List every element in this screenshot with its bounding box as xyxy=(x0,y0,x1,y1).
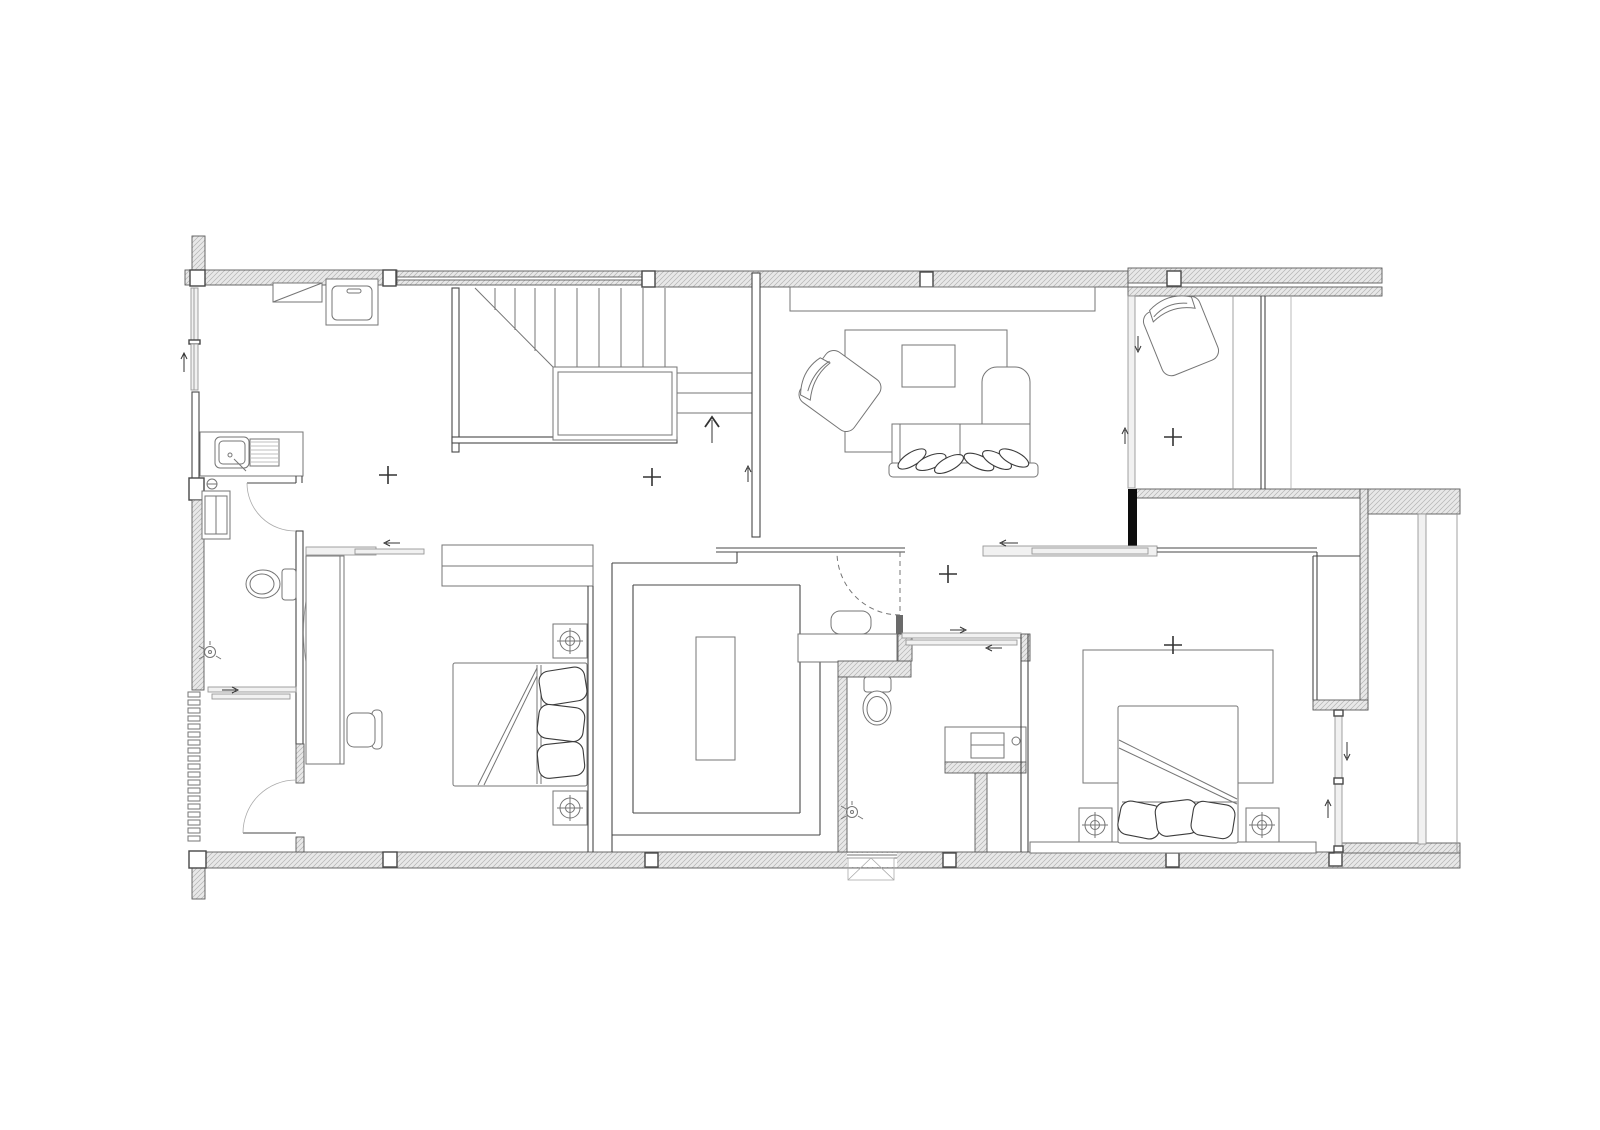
tv-console xyxy=(790,287,1095,311)
cabinet xyxy=(202,491,230,539)
stair-up-arrow xyxy=(705,417,719,443)
window xyxy=(191,344,198,390)
black-wall-bar xyxy=(1128,489,1137,546)
column xyxy=(190,270,205,286)
bedroom-1 xyxy=(306,540,593,852)
north-wall xyxy=(1157,548,1317,552)
window xyxy=(191,288,198,340)
armchair xyxy=(1138,286,1222,378)
window-opening-arrow xyxy=(181,353,187,372)
coffee-table xyxy=(902,345,955,387)
hall-partition-wall xyxy=(752,273,760,537)
stair-lower-steps xyxy=(677,373,752,413)
hall-south-wall xyxy=(716,548,905,552)
washing-machine xyxy=(326,279,378,325)
nightstand-lamp xyxy=(553,791,587,825)
column xyxy=(383,270,396,286)
stair-landing xyxy=(553,367,677,440)
bed-1 xyxy=(453,663,588,786)
door-swing-bottom xyxy=(243,780,296,833)
reach-in-wardrobe xyxy=(1313,552,1360,700)
staircase xyxy=(452,273,760,537)
vent-opening xyxy=(847,853,897,880)
vanity-counter xyxy=(798,634,897,662)
desk-chair xyxy=(347,710,382,749)
desk-counter xyxy=(306,556,344,764)
column xyxy=(642,271,655,287)
door-swing-top xyxy=(247,483,296,531)
cross-markers xyxy=(379,428,1182,654)
column xyxy=(1329,853,1342,866)
column xyxy=(920,272,933,287)
vanity-with-sink xyxy=(945,727,1026,763)
glass-wall xyxy=(1325,710,1350,853)
valve-symbol xyxy=(207,479,217,489)
sink-counter xyxy=(200,432,303,476)
armchair xyxy=(789,342,885,436)
built-in-wardrobe xyxy=(442,545,593,586)
stair-treads xyxy=(495,288,665,367)
terrace-rail xyxy=(1418,514,1457,852)
toilet xyxy=(863,677,891,725)
column xyxy=(943,853,956,867)
floor-plan-canvas xyxy=(0,0,1600,1130)
nightstand-lamp xyxy=(553,624,587,658)
shower-sliding-door xyxy=(208,687,296,699)
glass-partition xyxy=(1128,296,1135,488)
column xyxy=(189,851,206,868)
opening-arrow xyxy=(745,466,751,482)
bedroom-2 xyxy=(1030,548,1360,853)
living-room xyxy=(789,287,1095,477)
counter-appliance xyxy=(273,283,322,302)
column xyxy=(645,853,658,867)
column xyxy=(1166,853,1179,867)
floor-plan-page xyxy=(0,0,1600,1130)
island-dresser xyxy=(696,637,735,760)
bed-2 xyxy=(1116,706,1238,843)
bathroom-left xyxy=(199,476,309,852)
nightstand-lamp xyxy=(1246,808,1279,842)
nightstand-lamp xyxy=(1079,808,1112,842)
entry-sliding-door xyxy=(306,540,424,555)
terrace-room xyxy=(1122,286,1291,489)
stool xyxy=(831,611,871,634)
laundry-kitchenette xyxy=(200,279,378,489)
left-exterior-wall xyxy=(181,288,204,841)
double-sliding-door xyxy=(898,627,1030,661)
louver-slats xyxy=(188,692,200,841)
headboard-platform xyxy=(1030,842,1316,853)
sliding-glass-doors xyxy=(1233,296,1291,489)
column xyxy=(383,852,397,867)
column xyxy=(1167,271,1181,286)
toilet xyxy=(246,569,296,600)
